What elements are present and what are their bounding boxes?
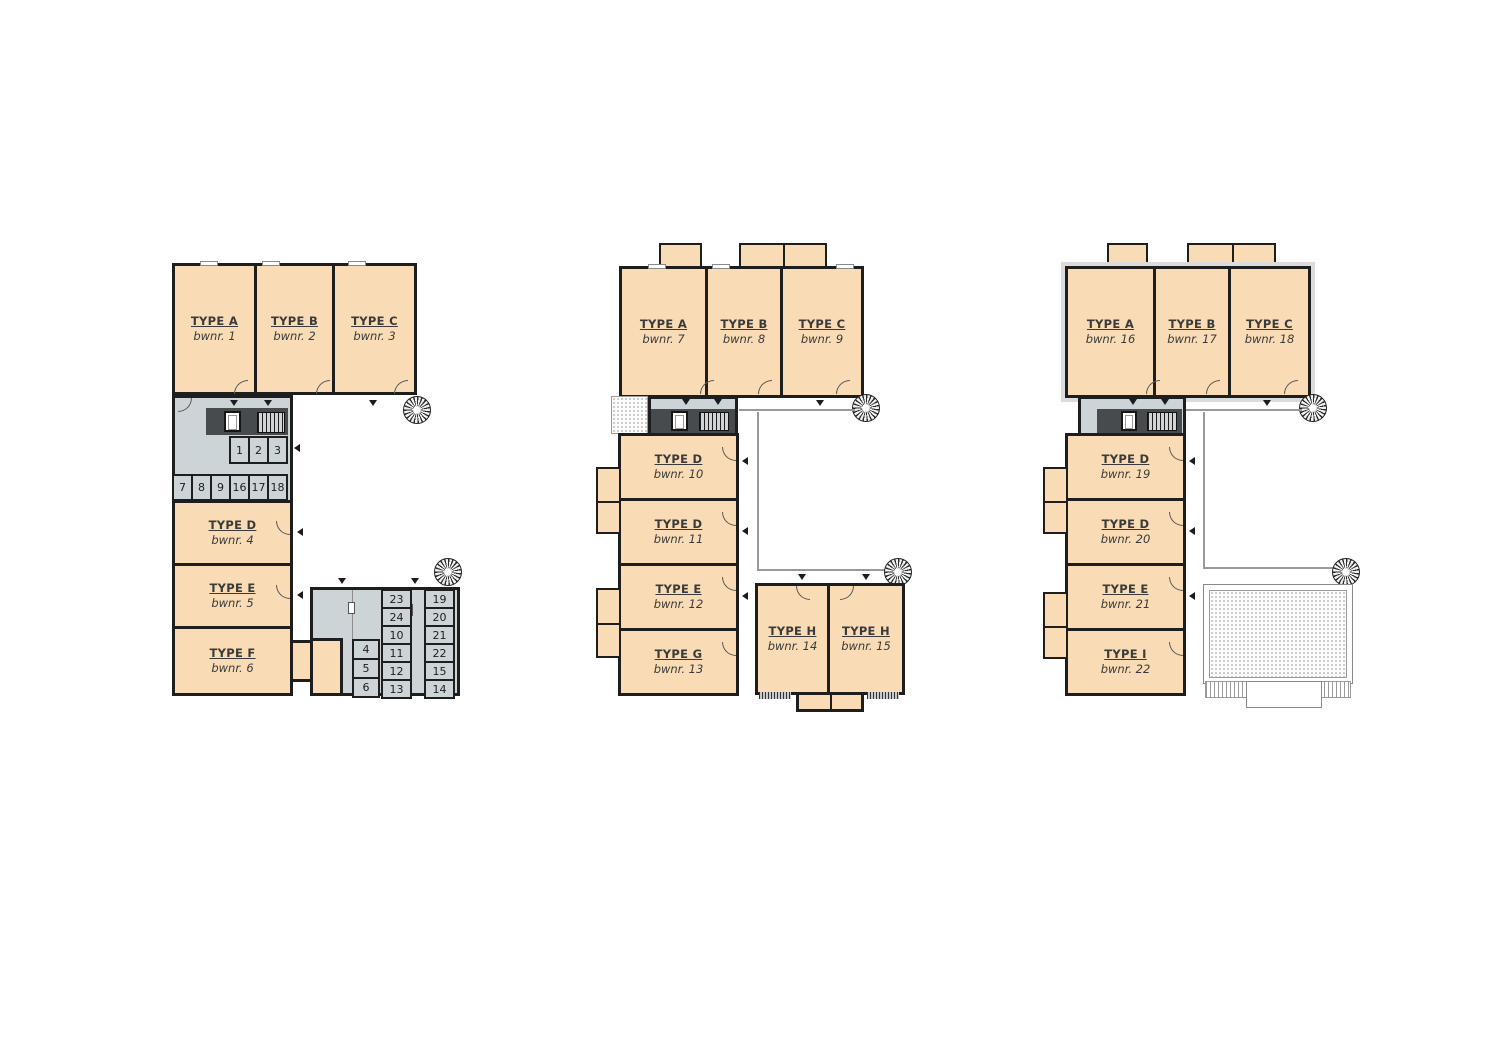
balcony bbox=[1043, 592, 1068, 659]
spiral-staircase-icon[interactable] bbox=[1332, 558, 1360, 586]
room-type-e-bwnr-21[interactable]: TYPE Ebwnr. 21 bbox=[1065, 563, 1186, 631]
room-bwnr-label: bwnr. 18 bbox=[1245, 332, 1295, 347]
entry-arrow-icon bbox=[1129, 399, 1137, 405]
room-type-label: TYPE D bbox=[1101, 452, 1151, 467]
floorplan-canvas: TYPE Abwnr. 1 TYPE Bbwnr. 2 TYPE Cbwnr. … bbox=[0, 0, 1485, 1050]
gallery-edge-line bbox=[1186, 409, 1302, 411]
stairs-icon[interactable] bbox=[1147, 412, 1177, 431]
room-bwnr-label: bwnr. 16 bbox=[1086, 332, 1136, 347]
entry-arrow-icon bbox=[1189, 457, 1195, 465]
room-type-d-bwnr-19[interactable]: TYPE Dbwnr. 19 bbox=[1065, 433, 1186, 501]
room-bwnr-label: bwnr. 22 bbox=[1101, 662, 1151, 677]
walkway-line bbox=[1203, 412, 1205, 568]
room-bwnr-label: bwnr. 20 bbox=[1101, 532, 1151, 547]
roof-stipple bbox=[1209, 590, 1347, 678]
room-bwnr-label: bwnr. 21 bbox=[1101, 597, 1151, 612]
room-type-label: TYPE I bbox=[1101, 647, 1151, 662]
entry-arrow-icon bbox=[1161, 399, 1169, 405]
room-type-b-bwnr-17[interactable]: TYPE Bbwnr. 17 bbox=[1156, 269, 1231, 395]
walkway-line bbox=[1203, 567, 1335, 569]
room-type-label: TYPE E bbox=[1101, 582, 1151, 597]
floor-plan-3: TYPE Abwnr. 16 TYPE Bbwnr. 17 TYPE Cbwnr… bbox=[0, 0, 1485, 1050]
room-bwnr-label: bwnr. 19 bbox=[1101, 467, 1151, 482]
room-type-label: TYPE C bbox=[1245, 317, 1295, 332]
balcony bbox=[1043, 467, 1068, 534]
room-bwnr-label: bwnr. 17 bbox=[1167, 332, 1217, 347]
dormer-outline bbox=[1246, 681, 1322, 708]
spiral-staircase-icon[interactable] bbox=[1299, 394, 1327, 422]
room-type-i-bwnr-22[interactable]: TYPE Ibwnr. 22 bbox=[1065, 628, 1186, 696]
entry-arrow-icon bbox=[1189, 527, 1195, 535]
room-type-label: TYPE D bbox=[1101, 517, 1151, 532]
room-type-a-bwnr-16[interactable]: TYPE Abwnr. 16 bbox=[1068, 269, 1156, 395]
entry-arrow-icon bbox=[1263, 400, 1271, 406]
room-type-c-bwnr-18[interactable]: TYPE Cbwnr. 18 bbox=[1231, 269, 1308, 395]
room-type-d-bwnr-20[interactable]: TYPE Dbwnr. 20 bbox=[1065, 498, 1186, 566]
elevator-icon[interactable] bbox=[1121, 411, 1137, 431]
block-abc: TYPE Abwnr. 16 TYPE Bbwnr. 17 TYPE Cbwnr… bbox=[1065, 266, 1311, 398]
room-type-label: TYPE B bbox=[1167, 317, 1217, 332]
entry-arrow-icon bbox=[1189, 592, 1195, 600]
room-type-label: TYPE A bbox=[1086, 317, 1136, 332]
